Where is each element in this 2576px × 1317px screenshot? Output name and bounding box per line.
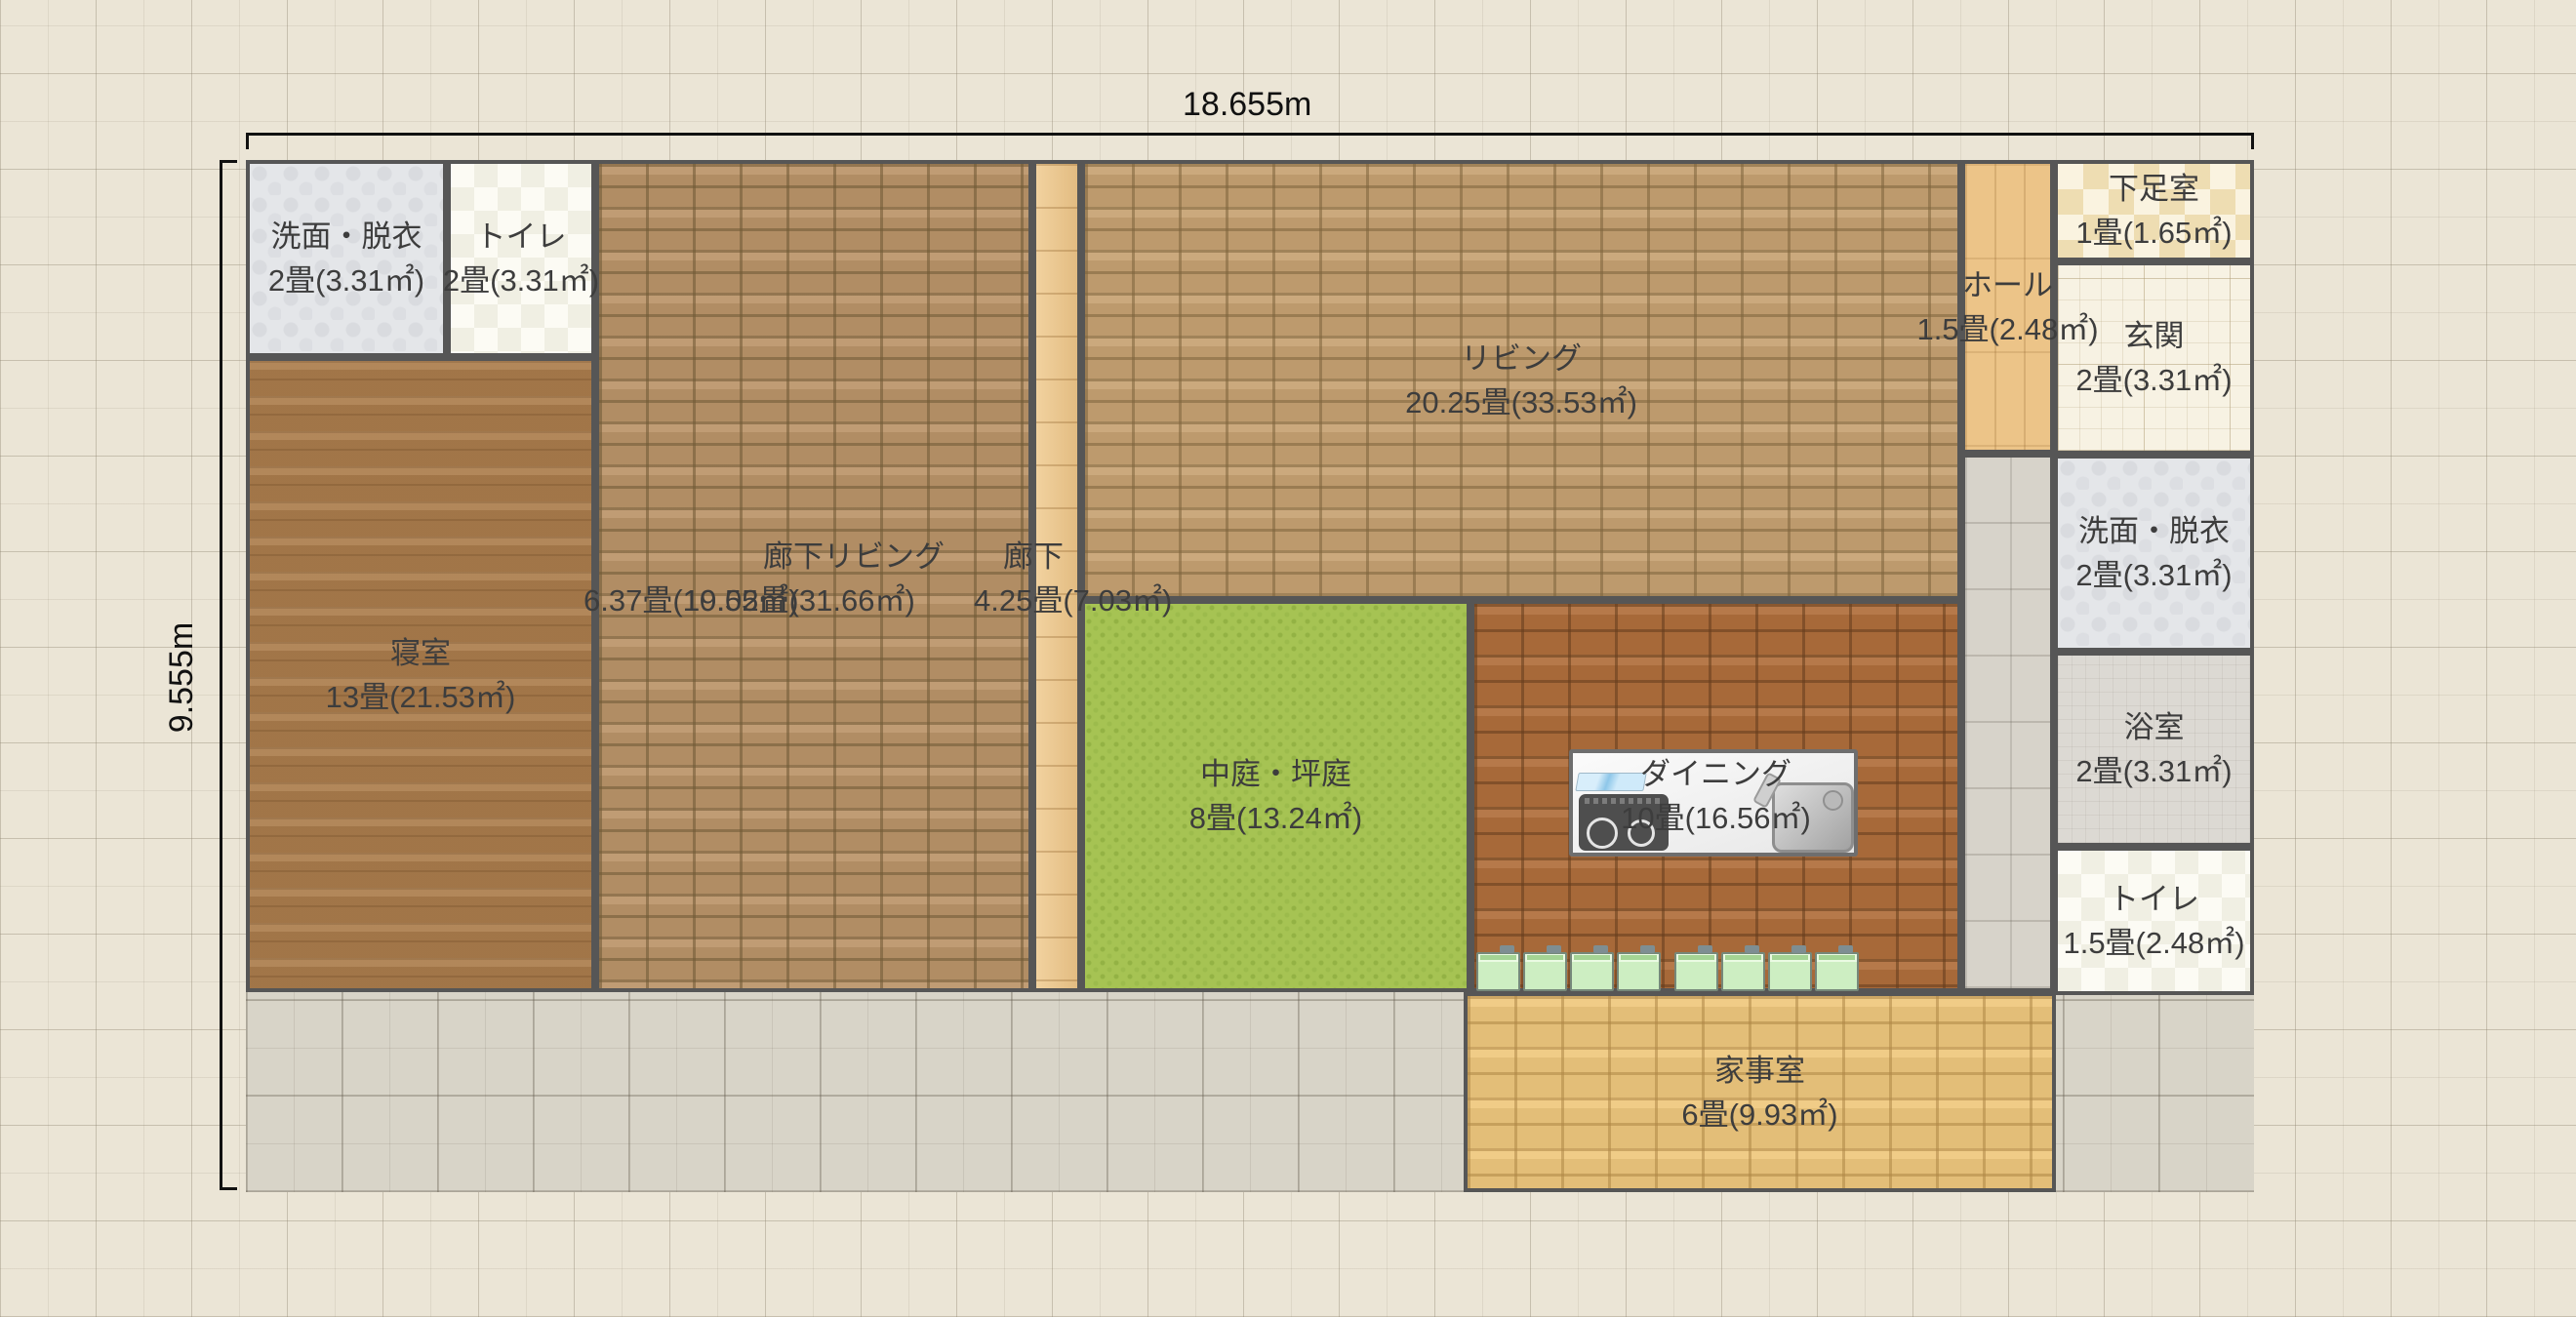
room-toilet-2[interactable]: トイレ1.5畳(2.48㎡) (2054, 847, 2254, 995)
room-area: 10畳(16.56㎡) (1621, 796, 1811, 840)
sink-faucet-icon (1823, 790, 1843, 811)
room-name: 家事室 (1681, 1049, 1837, 1093)
room-label-toilet-2: トイレ1.5畳(2.48㎡) (2063, 877, 2244, 965)
cushion-seat[interactable] (1476, 952, 1520, 991)
cushion-seat[interactable] (1617, 952, 1661, 991)
left-dimension-tick-top (220, 160, 237, 163)
room-area: 8畳(13.24㎡) (1189, 796, 1362, 840)
label-corridor-name: 廊下 (1003, 535, 1064, 579)
room-hall[interactable]: ホール1.5畳(2.48㎡) (1961, 160, 2054, 454)
room-area: 1畳(1.65㎡) (2075, 211, 2232, 255)
room-area: 2畳(3.31㎡) (268, 259, 424, 302)
room-area: 1.5畳(2.48㎡) (2063, 921, 2244, 965)
room-washroom-2[interactable]: 洗面・脱衣2畳(3.31㎡) (2054, 455, 2254, 652)
cushion-seat[interactable] (1570, 952, 1614, 991)
label-corridor-living-name: 廊下リビング (763, 535, 945, 579)
room-label-dining: ダイニング10畳(16.56㎡) (1621, 752, 1811, 840)
cushion-seat[interactable] (1674, 952, 1718, 991)
room-bedroom[interactable]: 寝室13畳(21.53㎡) (246, 357, 595, 992)
room-dining[interactable]: ダイニング10畳(16.56㎡) (1470, 600, 1961, 992)
room-living[interactable]: リビング20.25畳(33.53㎡) (1081, 160, 1961, 600)
room-area: 6畳(9.93㎡) (1681, 1093, 1837, 1137)
left-dimension-label: 9.555m (163, 622, 201, 733)
room-name: 洗面・脱衣 (268, 215, 424, 259)
top-dimension-label: 18.655m (1183, 86, 1311, 124)
room-washroom-1[interactable]: 洗面・脱衣2畳(3.31㎡) (246, 160, 447, 357)
room-name: 玄関 (2075, 314, 2232, 358)
room-label-toilet-1: トイレ2畳(3.31㎡) (443, 215, 599, 302)
room-area: 2畳(3.31㎡) (2075, 553, 2232, 597)
room-area: 2畳(3.31㎡) (443, 259, 599, 302)
cushion-seat[interactable] (1523, 952, 1567, 991)
room-name: 浴室 (2075, 705, 2232, 749)
room-name: 洗面・脱衣 (2075, 509, 2232, 553)
room-area: 2畳(3.31㎡) (2075, 749, 2232, 793)
cushion-seat[interactable] (1815, 952, 1859, 991)
top-dimension-tick-left (246, 133, 249, 149)
room-name: トイレ (2063, 877, 2244, 921)
left-dimension-tick-bottom (220, 1187, 237, 1190)
room-utility-room[interactable]: 家事室6畳(9.93㎡) (1464, 992, 2056, 1192)
room-label-living: リビング20.25畳(33.53㎡) (1405, 337, 1637, 424)
room-label-courtyard: 中庭・坪庭8畳(13.24㎡) (1189, 752, 1362, 840)
cushion-seat[interactable] (1721, 952, 1765, 991)
room-area: 2畳(3.31㎡) (2075, 358, 2232, 402)
room-label-washroom-2: 洗面・脱衣2畳(3.31㎡) (2075, 509, 2232, 597)
room-shoe-room[interactable]: 下足室1畳(1.65㎡) (2054, 160, 2254, 261)
room-label-washroom-1: 洗面・脱衣2畳(3.31㎡) (268, 215, 424, 302)
room-name: ダイニング (1621, 752, 1811, 796)
left-dimension-line (220, 160, 222, 1190)
room-name: 中庭・坪庭 (1189, 752, 1362, 796)
room-hall-passage[interactable] (1961, 454, 2054, 992)
top-dimension-tick-right (2251, 133, 2254, 149)
room-label-shoe-room: 下足室1畳(1.65㎡) (2075, 167, 2232, 255)
room-label-bedroom: 寝室13畳(21.53㎡) (326, 631, 516, 719)
room-name: 下足室 (2075, 167, 2232, 211)
label-corridor-living-area: 19.02畳(31.66㎡) (683, 579, 915, 622)
room-name: ホール (1916, 263, 2098, 307)
room-area: 20.25畳(33.53㎡) (1405, 380, 1637, 424)
room-area: 13畳(21.53㎡) (326, 675, 516, 719)
room-toilet-1[interactable]: トイレ2畳(3.31㎡) (447, 160, 595, 357)
room-area: 1.5畳(2.48㎡) (1916, 307, 2098, 351)
room-name: トイレ (443, 215, 599, 259)
room-label-utility-room: 家事室6畳(9.93㎡) (1681, 1049, 1837, 1137)
top-dimension-line (246, 133, 2254, 136)
label-corridor-area-c: 4.25畳(7.03㎡) (974, 579, 1172, 622)
room-label-bathroom: 浴室2畳(3.31㎡) (2075, 705, 2232, 793)
room-name: 寝室 (326, 631, 516, 675)
room-name: リビング (1405, 337, 1637, 380)
cushion-seat[interactable] (1768, 952, 1812, 991)
room-courtyard[interactable]: 中庭・坪庭8畳(13.24㎡) (1081, 600, 1470, 992)
floorplan-canvas[interactable]: 18.655m 9.555m 洗面・脱衣2畳(3.31㎡)トイレ2畳(3.31㎡… (0, 0, 2576, 1317)
room-label-hall: ホール1.5畳(2.48㎡) (1916, 263, 2098, 351)
room-label-entrance: 玄関2畳(3.31㎡) (2075, 314, 2232, 402)
room-bathroom[interactable]: 浴室2畳(3.31㎡) (2054, 652, 2254, 847)
